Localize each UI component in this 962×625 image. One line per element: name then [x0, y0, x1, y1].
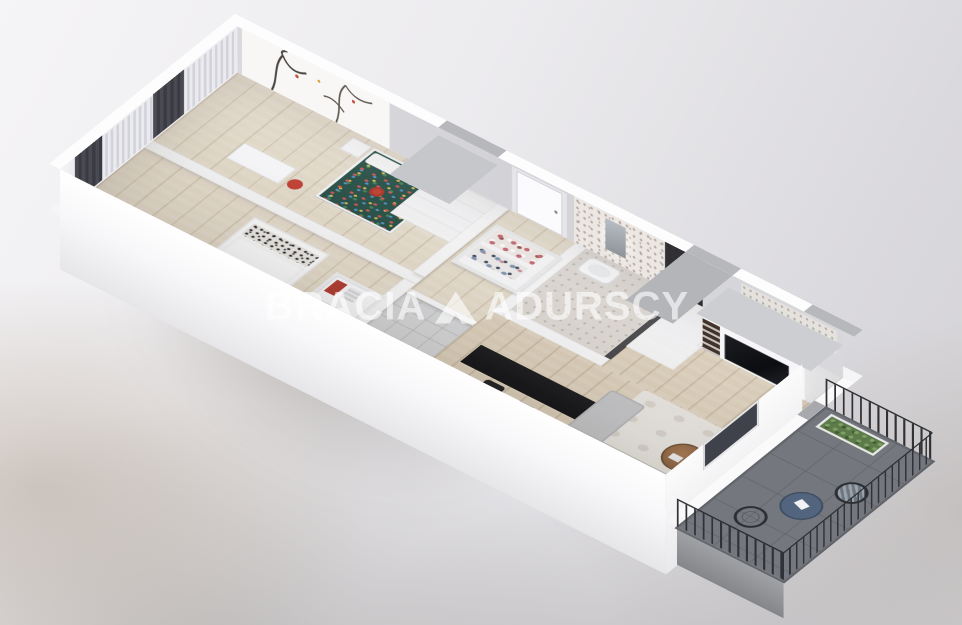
door-handle [554, 210, 557, 215]
kids-bed-red-tray [366, 185, 387, 198]
watermark-brand-left: BRACIA [265, 285, 427, 330]
scene-background: BRACIA ADURSCY [0, 0, 962, 625]
brand-logo-icon [434, 291, 476, 323]
paper-on-table [794, 499, 810, 510]
watermark-brand-right: ADURSCY [484, 285, 689, 330]
watermark: BRACIA ADURSCY [265, 285, 689, 330]
